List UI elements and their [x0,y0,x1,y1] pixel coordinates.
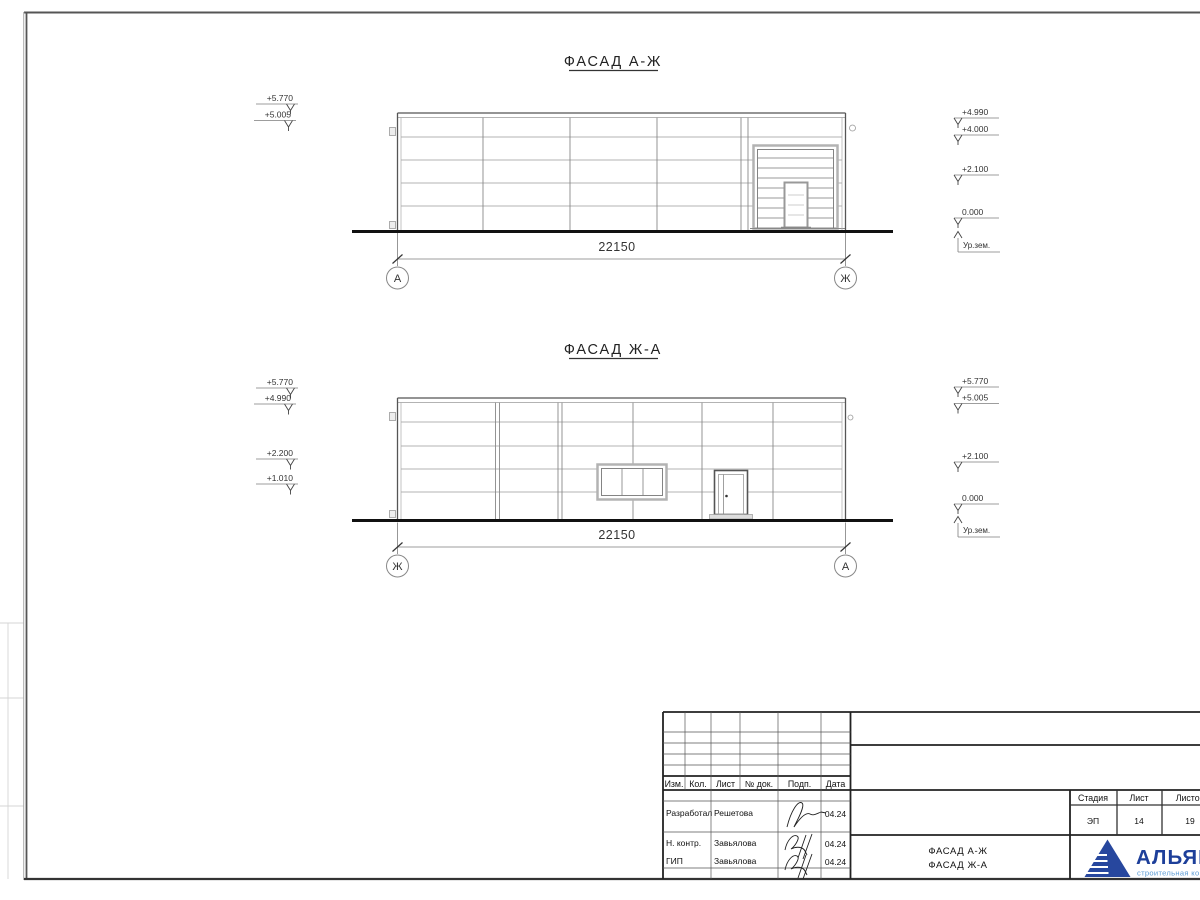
col-izm: Изм. [665,779,684,789]
logo-tagline: строительная компания [1137,869,1200,878]
facade-1-dimension: 22150 А Ж [387,233,857,289]
elevation-mark: +4.990 [265,393,292,403]
sectional-gate [750,145,845,229]
row-name: Завьялова [714,838,757,848]
logo-pyramid-icon [1085,840,1131,878]
door-handle-icon [725,495,728,498]
axis-label-left: А [394,273,402,285]
facade-2-dimension: 22150 Ж А [387,523,857,578]
col-list: Лист [716,779,735,789]
company-logo: АЛЬЯНС строительная компания [1085,840,1200,878]
title-block-header: Изм. Кол. Лист № док. Подп. Дата [665,779,846,789]
elevation-mark: +1.010 [267,473,294,483]
stage-value: ЭП [1087,816,1099,826]
elevation-mark: 0.000 [962,493,984,503]
facade-1-marks-left: +5.770 +5.005 [254,93,298,131]
window [597,464,667,500]
col-data: Дата [826,779,846,789]
axis-label-right: Ж [840,273,850,285]
sheets-value: 19 [1185,816,1195,826]
row-role: ГИП [666,856,683,866]
elevation-mark: 0.000 [962,207,984,217]
facade-zh-a-drawing: ФАСАД Ж-А [254,342,1000,577]
ground-level-label: Ур.зем. [963,526,990,535]
sheets-label: Листов [1176,793,1200,803]
downspout-marker-icon [850,125,856,131]
facade-1-marks-right: +4.990 +4.000 +2.100 0.000 Ур.зем. [954,107,1000,252]
col-doc: № док. [745,779,773,789]
title-block: Изм. Кол. Лист № док. Подп. Дата Разрабо… [663,712,1200,879]
elevation-mark: +5.005 [265,110,292,120]
staff-rows: Разработал Решетова 04.24 Н. контр. Завь… [666,803,846,879]
elevation-mark: +2.200 [267,448,294,458]
elevation-mark: +4.000 [962,124,989,134]
facade-2-panels [401,403,842,521]
row-name: Завьялова [714,856,757,866]
elevation-mark: +5.770 [267,93,294,103]
doc-title: ФАСАД А-Ж ФАСАД Ж-А [928,846,987,871]
elevation-mark: +2.100 [962,451,989,461]
row-date: 04.24 [825,839,847,849]
elevation-mark: +2.100 [962,164,989,174]
facade-2-title: ФАСАД Ж-А [564,342,662,358]
sheet-value: 14 [1134,816,1144,826]
ground-level-label: Ур.зем. [963,241,990,250]
facade-2-marks-left: +5.770 +4.990 +2.200 +1.010 [254,377,298,495]
doc-title-line1: ФАСАД А-Ж [928,846,987,857]
facade-2-outline [390,398,854,520]
logo-company-name: АЛЬЯНС [1136,846,1200,869]
row-role: Н. контр. [666,838,701,848]
sheet-label: Лист [1129,793,1148,803]
row-date: 04.24 [825,809,847,819]
elevation-mark: +5.770 [962,376,989,386]
signature [787,803,826,827]
axis-label-right: А [842,561,850,573]
entrance-door [710,470,753,519]
facade-a-zh-drawing: ФАСАД А-Ж [254,54,1000,289]
elevation-mark: +4.990 [962,107,989,117]
elevation-mark: +5.770 [267,377,294,387]
elevation-mark: +5.005 [962,393,989,403]
wicket-door [781,182,811,228]
downspout-marker-icon [848,415,853,420]
signature [785,854,812,879]
facade-1-title: ФАСАД А-Ж [564,54,662,70]
row-date: 04.24 [825,857,847,867]
row-name: Решетова [714,808,753,818]
facade-2-marks-right: +5.770 +5.005 +2.100 0.000 Ур.зем. [954,376,1000,537]
drawing-sheet: ФАСАД А-Ж [0,0,1200,900]
dimension-value: 22150 [598,240,635,254]
axis-label-left: Ж [392,561,402,573]
row-role: Разработал [666,808,712,818]
col-podp: Подп. [788,779,811,789]
stage-label: Стадия [1078,793,1108,803]
doc-title-line2: ФАСАД Ж-А [928,860,987,871]
cad-drawing: ФАСАД А-Ж [0,0,1200,900]
door-threshold [710,515,753,520]
dimension-value: 22150 [598,528,635,542]
col-kol: Кол. [689,779,706,789]
stage-section: Стадия Лист Листов ЭП 14 19 [1078,793,1200,826]
signature [785,834,812,859]
